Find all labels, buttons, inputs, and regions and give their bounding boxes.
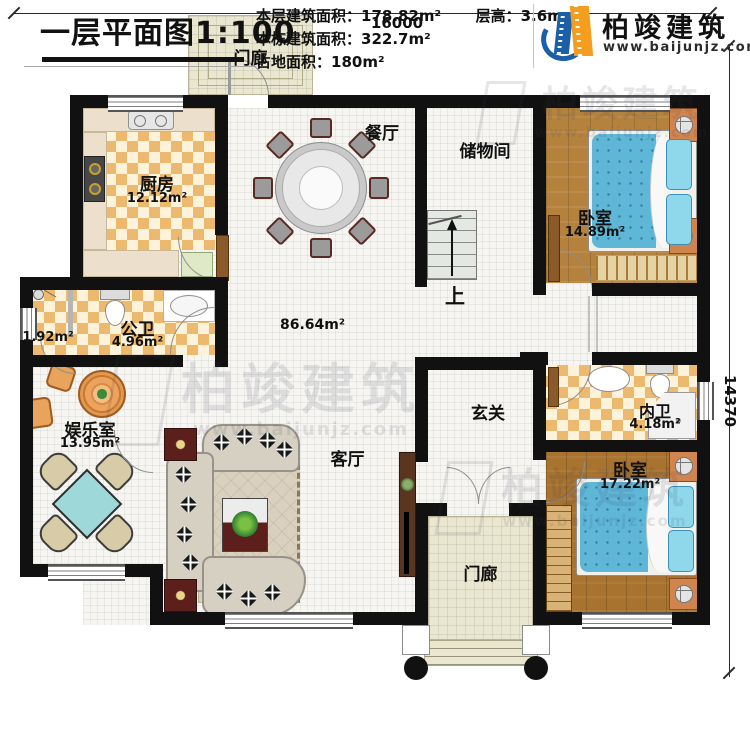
stat-label: 本层建筑面积： — [256, 7, 361, 25]
dimension-right-value: 14370 — [721, 373, 739, 429]
wall — [533, 95, 546, 295]
burner — [89, 163, 101, 175]
bed-duvet — [646, 482, 668, 572]
bed-pillow — [668, 530, 694, 572]
wardrobe — [546, 505, 572, 612]
stairs-arrow-line — [451, 228, 453, 276]
lamp — [675, 457, 693, 475]
wall — [20, 564, 48, 577]
floor-height-label: 层高： — [476, 7, 521, 25]
sofa-section — [202, 556, 306, 616]
side-table — [164, 579, 197, 612]
wall — [592, 352, 710, 365]
divider — [533, 4, 534, 68]
dimension-line-right — [729, 47, 730, 677]
stat-row: 本层建筑面积：178.82m² 层高：3.6m — [256, 5, 563, 28]
bed-pillow — [668, 486, 694, 528]
wall — [150, 612, 225, 625]
dining-chair — [310, 238, 332, 258]
wall — [215, 277, 228, 367]
wall — [533, 500, 546, 628]
plant — [401, 478, 414, 491]
wall — [20, 355, 183, 367]
bed-pillow — [666, 194, 692, 245]
sink-basin — [134, 115, 146, 127]
room-area-shower: 1.92m² — [22, 330, 74, 345]
building-stats: 本层建筑面积：178.82m² 层高：3.6m 本栋建筑面积：322.7m² 占… — [256, 5, 563, 74]
room-area-kitchen: 12.12m² — [102, 191, 212, 206]
side-table — [164, 428, 197, 461]
bed-pillow — [666, 139, 692, 190]
wall — [20, 277, 228, 290]
door-leaf — [548, 367, 559, 407]
room-area-bath-public: 4.96m² — [90, 335, 185, 350]
bath-sink — [588, 366, 630, 392]
corridor-opening — [588, 296, 598, 352]
stat-value: 178.82m² — [361, 7, 441, 25]
title-underline-thin — [24, 66, 256, 67]
stairs-up-label: 上 — [435, 280, 475, 309]
wall — [215, 95, 228, 235]
wall — [697, 95, 710, 382]
company-logo: 柏竣建筑 www.baijunjz.com — [544, 2, 744, 72]
plan-title-text: 一层平面图 — [40, 16, 195, 51]
dining-chair — [253, 177, 273, 199]
room-label-hall: 玄关 — [443, 399, 533, 424]
dining-chair — [310, 118, 332, 138]
room-label-storage: 储物间 — [430, 137, 540, 162]
lamp — [675, 116, 693, 134]
sink-basin — [155, 115, 167, 127]
wall — [415, 357, 428, 462]
window — [225, 612, 353, 629]
wicker-table — [78, 370, 126, 418]
tv — [404, 512, 409, 574]
toilet — [646, 364, 674, 374]
bedside-rug — [596, 255, 696, 281]
wall — [533, 440, 710, 452]
wall — [545, 612, 582, 625]
window — [108, 95, 183, 112]
column-base — [522, 625, 550, 655]
kitchen-sink — [128, 110, 174, 130]
column — [404, 656, 428, 680]
wall — [509, 503, 545, 516]
door-leaf — [216, 235, 229, 281]
stat-label: 占地面积： — [256, 53, 331, 71]
wall — [415, 503, 428, 628]
room-area-bath-ensuite: 4.18m² — [615, 417, 695, 432]
room-area-bedroom1: 14.89m² — [540, 225, 650, 240]
wall — [415, 503, 447, 516]
room-label-porch-bottom: 门廊 — [428, 560, 533, 585]
kitchen-counter — [83, 250, 179, 277]
room-label-dining: 餐厅 — [342, 119, 422, 144]
room-label-living: 客厅 — [300, 445, 395, 470]
wall — [697, 420, 710, 625]
title-underline-thick — [42, 57, 244, 62]
nightstand — [669, 578, 699, 610]
burner — [89, 183, 101, 195]
wall — [20, 340, 33, 577]
room-area-entertainment: 13.95m² — [35, 436, 145, 451]
lamp — [675, 585, 693, 603]
dining-chair — [369, 177, 389, 199]
shower-head-icon — [33, 289, 44, 300]
window — [582, 612, 672, 629]
room-area-bedroom2: 17.22m² — [585, 477, 675, 492]
window — [697, 382, 714, 420]
nightstand — [669, 108, 699, 142]
company-website: www.baijunjz.com — [603, 40, 750, 55]
column — [524, 656, 548, 680]
bed-mattress — [580, 482, 648, 572]
toilet — [100, 289, 130, 300]
stat-value: 322.7m² — [361, 30, 431, 48]
dining-table-center — [299, 166, 343, 210]
wall — [520, 352, 548, 365]
stat-row: 本栋建筑面积：322.7m² — [256, 28, 563, 51]
wall — [592, 283, 710, 296]
plant — [232, 511, 258, 537]
porch-steps — [424, 640, 538, 666]
window — [580, 95, 670, 112]
logo-building-orange — [570, 6, 593, 56]
stairs-arrow-head — [447, 219, 457, 230]
column-base — [402, 625, 430, 655]
logo-icon — [544, 4, 596, 66]
room-area-great: 86.64m² — [260, 317, 365, 333]
stat-value: 180m² — [331, 53, 385, 71]
stat-row: 占地面积：180m² — [256, 51, 563, 74]
window — [48, 564, 125, 581]
wall — [70, 95, 83, 290]
stat-label: 本栋建筑面积： — [256, 30, 361, 48]
title-block: 一层平面图1:100 本层建筑面积：178.82m² 层高：3.6m 本栋建筑面… — [0, 0, 750, 73]
floor-plan: 16000 14370 — [0, 0, 750, 755]
